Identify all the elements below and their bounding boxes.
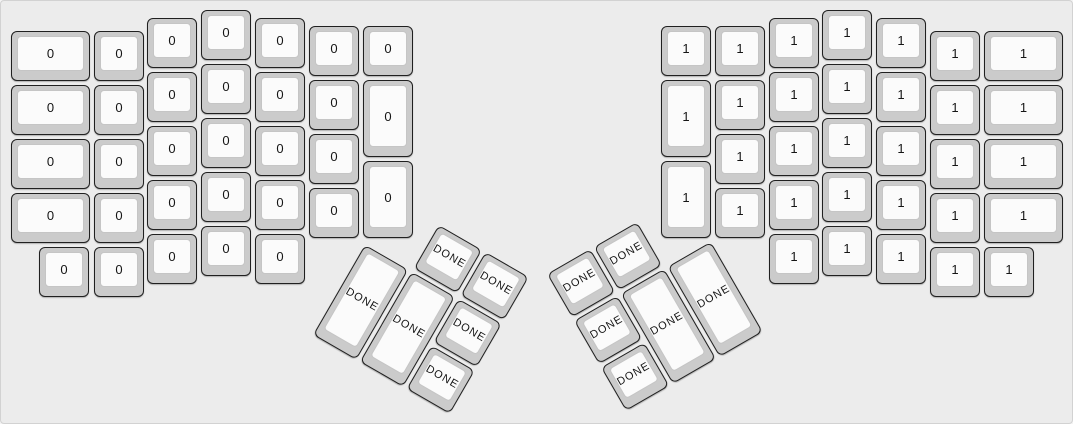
key-left-c2-r4[interactable]: 0: [94, 193, 144, 243]
keycap-top: 0: [100, 252, 138, 287]
keycap-label: 1: [1005, 263, 1012, 276]
keycap-label: 0: [384, 42, 391, 55]
keycap-label: DONE: [608, 240, 644, 267]
key-left-c4-r4[interactable]: 0: [201, 172, 251, 222]
key-left-c6-r2[interactable]: 0: [309, 80, 359, 130]
key-right-c7-r2[interactable]: 1: [984, 85, 1063, 135]
keycap-label: 1: [897, 88, 904, 101]
keycap-top: 0: [369, 166, 407, 228]
keycap-label: DONE: [649, 310, 685, 337]
keycap-label: 0: [47, 101, 54, 114]
key-left-c7-tall1[interactable]: 0: [363, 80, 413, 157]
keycap-label: DONE: [562, 267, 598, 294]
key-right-c2-r1[interactable]: 1: [715, 26, 765, 76]
key-left-c7-r1[interactable]: 0: [363, 26, 413, 76]
keycap-top: 1: [936, 36, 974, 71]
keycap-top: 0: [17, 198, 84, 233]
keycap-top: 0: [315, 139, 353, 174]
keycap-top: 0: [261, 185, 299, 220]
keycap-label: 1: [736, 42, 743, 55]
keycap-top: 0: [207, 231, 245, 266]
keycap-top: 0: [207, 177, 245, 212]
keycap-top: 0: [315, 31, 353, 66]
key-right-c7-r1[interactable]: 1: [984, 31, 1063, 81]
keycap-label: 0: [384, 191, 391, 204]
keycap-label: 0: [222, 188, 229, 201]
keycap-top: 1: [882, 185, 920, 220]
keycap-label: 1: [843, 26, 850, 39]
key-right-c4-r5[interactable]: 1: [822, 226, 872, 276]
keycap-top: 1: [721, 193, 759, 228]
keycap-label: 1: [843, 188, 850, 201]
key-right-c3-r2[interactable]: 1: [769, 72, 819, 122]
keycap-top: 1: [936, 90, 974, 125]
keycap-label: 1: [897, 196, 904, 209]
key-left-c6-r3[interactable]: 0: [309, 134, 359, 184]
keycap-top: 0: [207, 123, 245, 158]
keycap-top: 0: [153, 23, 191, 58]
key-left-c2-r5[interactable]: 0: [94, 247, 144, 297]
keycap-label: 0: [168, 88, 175, 101]
key-right-c4-r2[interactable]: 1: [822, 64, 872, 114]
key-right-c7-r4[interactable]: 1: [984, 193, 1063, 243]
key-left-c5-r1[interactable]: 0: [255, 18, 305, 68]
key-left-c5-r4[interactable]: 0: [255, 180, 305, 230]
keycap-label: 1: [790, 88, 797, 101]
key-right-c3-r5[interactable]: 1: [769, 234, 819, 284]
key-right-c4-r1[interactable]: 1: [822, 10, 872, 60]
keycap-label: 0: [276, 196, 283, 209]
keycap-label: 0: [222, 26, 229, 39]
keycap-top: 1: [775, 77, 813, 112]
key-left-c2-r3[interactable]: 0: [94, 139, 144, 189]
keycap-label: 0: [276, 88, 283, 101]
key-left-c4-r1[interactable]: 0: [201, 10, 251, 60]
keycap-top: 1: [721, 85, 759, 120]
key-right-c3-r4[interactable]: 1: [769, 180, 819, 230]
keyboard-canvas: 00000000000000000000000000000000DONEDONE…: [0, 0, 1073, 424]
key-left-c6-r1[interactable]: 0: [309, 26, 359, 76]
keycap-top: 1: [936, 252, 974, 287]
keycap-label: 1: [843, 242, 850, 255]
keycap-label: 0: [330, 42, 337, 55]
keycap-label: 0: [168, 250, 175, 263]
keycap-top: 1: [990, 252, 1028, 287]
keycap-top: 0: [100, 36, 138, 71]
keycap-label: 0: [330, 96, 337, 109]
keycap-label: DONE: [696, 283, 732, 310]
keycap-label: 0: [222, 242, 229, 255]
key-left-c3-r1[interactable]: 0: [147, 18, 197, 68]
keycap-label: 1: [790, 250, 797, 263]
keycap-label: 0: [47, 47, 54, 60]
keycap-label: 0: [330, 150, 337, 163]
keycap-top: 1: [936, 144, 974, 179]
key-right-c5-r1[interactable]: 1: [876, 18, 926, 68]
key-left-c7-tall2[interactable]: 0: [363, 161, 413, 238]
key-right-c7-r3[interactable]: 1: [984, 139, 1063, 189]
keycap-top: 0: [369, 85, 407, 147]
keycap-top: 0: [100, 198, 138, 233]
keycap-top: 0: [153, 77, 191, 112]
key-right-c1-r1[interactable]: 1: [661, 26, 711, 76]
keycap-label: DONE: [390, 313, 426, 340]
keycap-label: 1: [951, 155, 958, 168]
keycap-label: 1: [843, 134, 850, 147]
keycap-label: DONE: [431, 243, 467, 270]
key-right-c6-r3[interactable]: 1: [930, 139, 980, 189]
keycap-label: 0: [115, 47, 122, 60]
key-right-c6-r1[interactable]: 1: [930, 31, 980, 81]
keycap-label: DONE: [589, 314, 625, 341]
key-left-c5-r3[interactable]: 0: [255, 126, 305, 176]
key-left-c1-r3[interactable]: 0: [11, 139, 90, 189]
keycap-top: 0: [153, 131, 191, 166]
keycap-top: 1: [667, 85, 705, 147]
keycap-label: 0: [330, 204, 337, 217]
key-right-c6-r2[interactable]: 1: [930, 85, 980, 135]
keycap-top: 1: [775, 185, 813, 220]
keycap-top: 1: [828, 177, 866, 212]
key-left-c4-r3[interactable]: 0: [201, 118, 251, 168]
keycap-label: 1: [843, 80, 850, 93]
keycap-label: 1: [790, 196, 797, 209]
key-left-c1-r4[interactable]: 0: [11, 193, 90, 243]
keycap-label: 0: [384, 110, 391, 123]
keycap-top: 0: [369, 31, 407, 66]
keycap-label: 1: [897, 142, 904, 155]
key-left-c3-r3[interactable]: 0: [147, 126, 197, 176]
keycap-top: 0: [207, 15, 245, 50]
key-left-c5-r5[interactable]: 0: [255, 234, 305, 284]
keycap-top: 0: [261, 131, 299, 166]
key-right-c4-r3[interactable]: 1: [822, 118, 872, 168]
key-left-c3-r5[interactable]: 0: [147, 234, 197, 284]
keycap-label: 1: [682, 42, 689, 55]
keycap-top: 0: [261, 23, 299, 58]
key-left-c3-r4[interactable]: 0: [147, 180, 197, 230]
keycap-label: 0: [222, 80, 229, 93]
keycap-top: 1: [775, 131, 813, 166]
key-right-c3-r1[interactable]: 1: [769, 18, 819, 68]
keycap-label: 0: [222, 134, 229, 147]
keycap-top: DONE: [471, 259, 521, 308]
key-left-c2-r1[interactable]: 0: [94, 31, 144, 81]
keycap-label: 1: [951, 209, 958, 222]
key-left-c6-r4[interactable]: 0: [309, 188, 359, 238]
keycap-top: 0: [45, 252, 83, 287]
keycap-top: 1: [990, 198, 1057, 233]
keycap-label: 1: [736, 150, 743, 163]
key-right-c2-r2[interactable]: 1: [715, 80, 765, 130]
keycap-label: 0: [276, 250, 283, 263]
key-left-c1-r1[interactable]: 0: [11, 31, 90, 81]
key-left-c5-r2[interactable]: 0: [255, 72, 305, 122]
keycap-label: 0: [168, 142, 175, 155]
keycap-label: 0: [115, 101, 122, 114]
keycap-top: 1: [990, 36, 1057, 71]
keycap-label: 1: [951, 101, 958, 114]
keycap-top: 0: [100, 90, 138, 125]
key-left-c1-r2[interactable]: 0: [11, 85, 90, 135]
keycap-label: DONE: [344, 286, 380, 313]
key-right-bottomrow-5[interactable]: 1: [984, 247, 1034, 297]
keycap-top: 1: [667, 166, 705, 228]
key-right-c5-r4[interactable]: 1: [876, 180, 926, 230]
keycap-top: 1: [775, 239, 813, 274]
keycap-label: 0: [60, 263, 67, 276]
keycap-label: 1: [682, 191, 689, 204]
key-left-bottomrow-1[interactable]: 0: [39, 247, 89, 297]
key-right-c6-r4[interactable]: 1: [930, 193, 980, 243]
keycap-label: 1: [682, 110, 689, 123]
keycap-top: 0: [315, 193, 353, 228]
keycap-label: 1: [951, 47, 958, 60]
keycap-label: 0: [276, 142, 283, 155]
keycap-label: 0: [276, 34, 283, 47]
keycap-top: 1: [990, 90, 1057, 125]
keycap-top: DONE: [424, 232, 474, 281]
keycap-label: DONE: [478, 270, 514, 297]
keycap-top: 0: [17, 144, 84, 179]
keycap-label: 1: [897, 34, 904, 47]
keycap-top: 1: [775, 23, 813, 58]
keycap-top: 1: [882, 239, 920, 274]
keycap-top: 1: [667, 31, 705, 66]
key-right-c5-r5[interactable]: 1: [876, 234, 926, 284]
key-right-c2-r4[interactable]: 1: [715, 188, 765, 238]
keycap-label: DONE: [424, 364, 460, 391]
keycap-top: 0: [17, 36, 84, 71]
keycap-top: 1: [882, 23, 920, 58]
key-right-c6-r5[interactable]: 1: [930, 247, 980, 297]
keycap-label: 1: [1020, 47, 1027, 60]
keycap-top: DONE: [609, 350, 659, 399]
keycap-label: 0: [168, 34, 175, 47]
keycap-top: 1: [828, 15, 866, 50]
keycap-label: 1: [736, 96, 743, 109]
keycap-label: 1: [790, 142, 797, 155]
keycap-top: DONE: [601, 229, 651, 278]
keycap-label: 0: [115, 155, 122, 168]
keycap-top: DONE: [444, 306, 494, 355]
keycap-label: DONE: [616, 361, 652, 388]
key-left-c4-r5[interactable]: 0: [201, 226, 251, 276]
keycap-label: 0: [168, 196, 175, 209]
keycap-top: 1: [828, 231, 866, 266]
keycap-top: 0: [261, 239, 299, 274]
keycap-top: 1: [990, 144, 1057, 179]
key-left-c3-r2[interactable]: 0: [147, 72, 197, 122]
keycap-top: 1: [828, 69, 866, 104]
key-right-c5-r3[interactable]: 1: [876, 126, 926, 176]
keycap-label: 1: [951, 263, 958, 276]
key-right-c5-r2[interactable]: 1: [876, 72, 926, 122]
key-left-c2-r2[interactable]: 0: [94, 85, 144, 135]
keycap-top: 1: [828, 123, 866, 158]
keycap-top: 1: [721, 31, 759, 66]
keycap-label: 1: [1020, 209, 1027, 222]
keycap-top: 0: [315, 85, 353, 120]
keycap-top: 0: [153, 185, 191, 220]
keycap-top: 0: [100, 144, 138, 179]
keycap-top: 0: [207, 69, 245, 104]
keycap-label: 0: [115, 263, 122, 276]
keycap-top: 1: [882, 77, 920, 112]
key-right-c1-tall2[interactable]: 1: [661, 161, 711, 238]
keycap-top: DONE: [582, 303, 632, 352]
keycap-top: 1: [721, 139, 759, 174]
keycap-top: 1: [936, 198, 974, 233]
keycap-label: 0: [47, 155, 54, 168]
keycap-label: 0: [47, 209, 54, 222]
keycap-label: 1: [1020, 155, 1027, 168]
keycap-label: 1: [736, 204, 743, 217]
keycap-label: 1: [897, 250, 904, 263]
keycap-label: 1: [1020, 101, 1027, 114]
key-right-c2-r3[interactable]: 1: [715, 134, 765, 184]
key-left-c4-r2[interactable]: 0: [201, 64, 251, 114]
keycap-label: 0: [115, 209, 122, 222]
keycap-top: 1: [882, 131, 920, 166]
keycap-top: DONE: [555, 256, 605, 305]
keycap-label: DONE: [451, 317, 487, 344]
keycap-label: 1: [790, 34, 797, 47]
key-right-c1-tall1[interactable]: 1: [661, 80, 711, 157]
keycap-top: 0: [17, 90, 84, 125]
key-right-c3-r3[interactable]: 1: [769, 126, 819, 176]
keycap-top: DONE: [417, 353, 467, 402]
keycap-top: 0: [153, 239, 191, 274]
keycap-top: 0: [261, 77, 299, 112]
key-right-c4-r4[interactable]: 1: [822, 172, 872, 222]
